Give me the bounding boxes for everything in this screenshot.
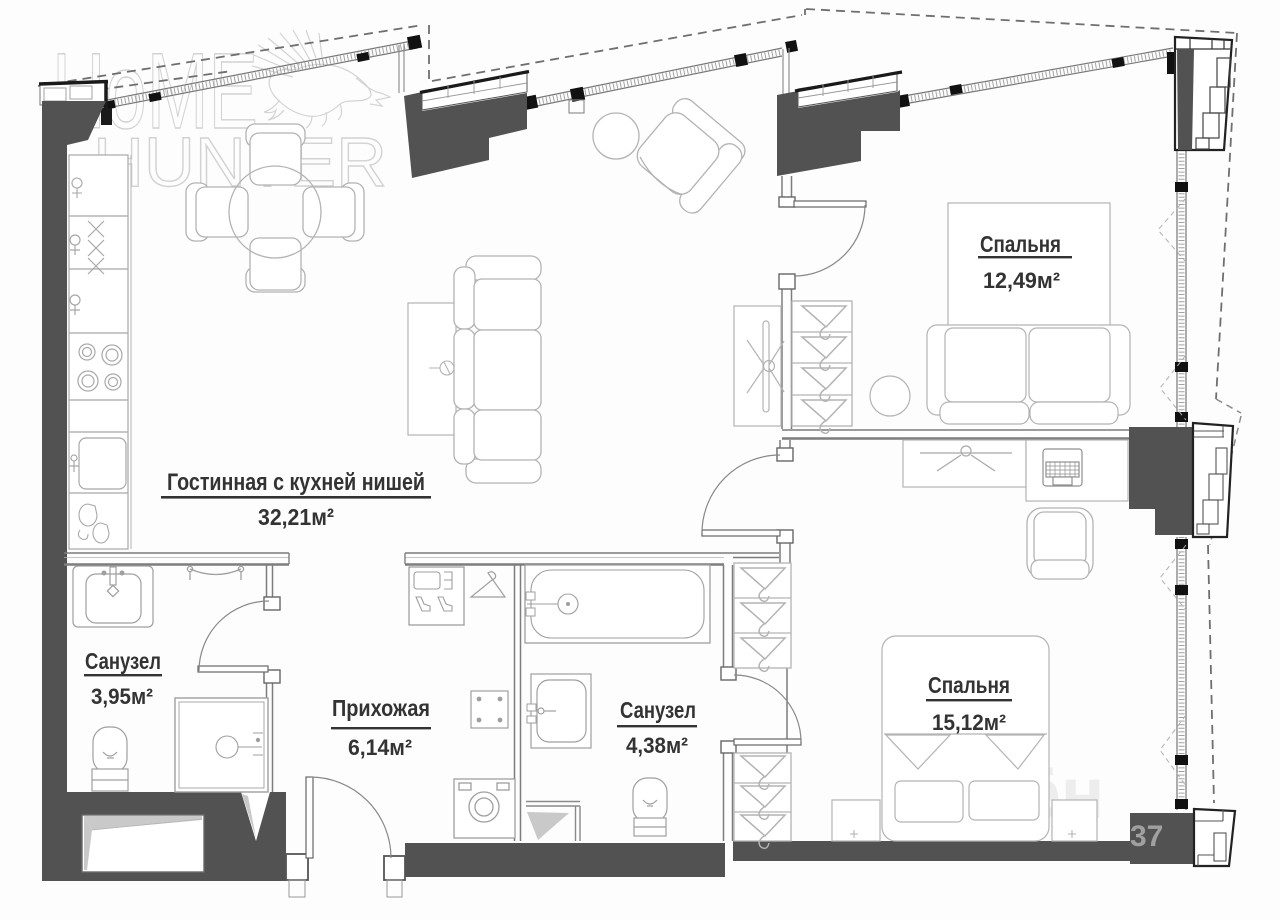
svg-text:Гостинная с кухней нишей: Гостинная с кухней нишей bbox=[167, 469, 425, 496]
svg-text:15,12м²: 15,12м² bbox=[932, 710, 1006, 735]
svg-text:37: 37 bbox=[1130, 820, 1163, 853]
svg-text:3,95м²: 3,95м² bbox=[91, 684, 153, 709]
svg-text:Санузел: Санузел bbox=[85, 648, 161, 674]
svg-text:12,49м²: 12,49м² bbox=[983, 268, 1060, 293]
svg-text:6,14м²: 6,14м² bbox=[348, 735, 412, 760]
svg-text:32,21м²: 32,21м² bbox=[258, 504, 334, 530]
svg-text:Прихожая: Прихожая bbox=[332, 695, 430, 721]
svg-text:Спальня: Спальня bbox=[980, 231, 1061, 257]
svg-text:Спальня: Спальня bbox=[928, 672, 1010, 698]
svg-text:Санузел: Санузел bbox=[620, 697, 696, 723]
svg-text:4,38м²: 4,38м² bbox=[626, 733, 688, 758]
